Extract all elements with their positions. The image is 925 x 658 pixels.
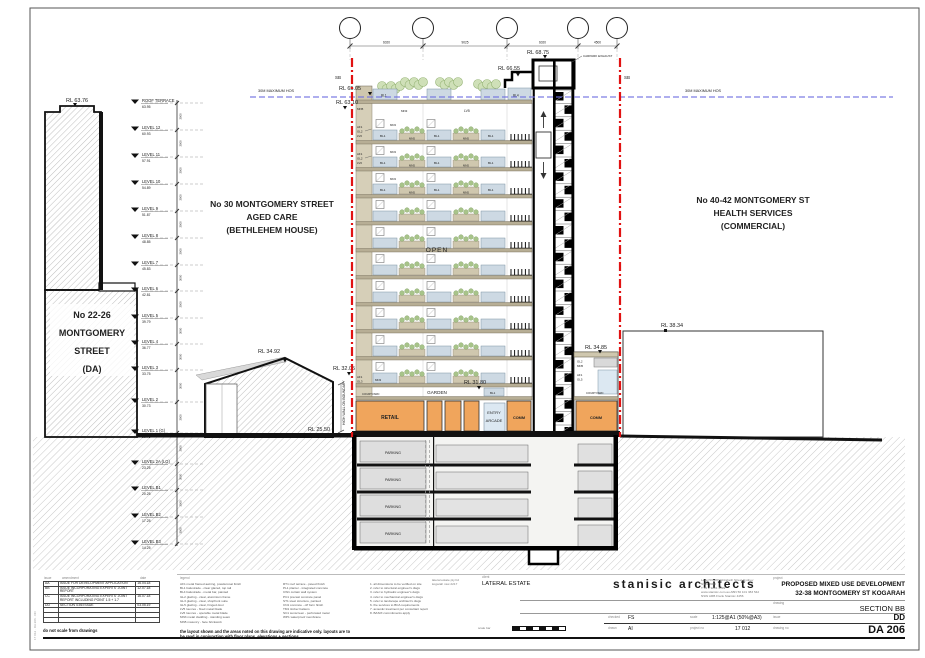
rl-core-roof: RL 66.55 bbox=[498, 66, 520, 72]
planting-icon bbox=[410, 291, 415, 296]
ground-line-left bbox=[137, 433, 356, 438]
planting-icon bbox=[464, 210, 469, 215]
grid-bubble bbox=[497, 18, 518, 39]
balustrade bbox=[481, 211, 505, 221]
planting-icon bbox=[415, 343, 420, 348]
level-dim: 3000 bbox=[179, 140, 183, 147]
svg-text:AGED CARE: AGED CARE bbox=[246, 212, 297, 222]
planting-icon bbox=[415, 370, 420, 375]
planting-icon bbox=[464, 129, 469, 134]
planter bbox=[399, 322, 425, 329]
balustrade bbox=[427, 211, 451, 221]
planting-icon bbox=[405, 235, 410, 240]
tower: BL1 BL4 MN5 MN3 LV5 RL 65.05 RL 63.10 BL… bbox=[336, 78, 532, 432]
planting-icon bbox=[474, 210, 479, 215]
planting-icon bbox=[459, 127, 464, 132]
high-wall-note: HIGH WALL ON BOUNDARY bbox=[342, 380, 346, 425]
planting-icon bbox=[410, 156, 415, 161]
planting-icon bbox=[400, 129, 405, 134]
svg-text:AF1: AF1 bbox=[577, 373, 583, 377]
planting-icon bbox=[415, 262, 420, 267]
rl-left-building: RL 63.76 bbox=[66, 98, 88, 104]
planting-icon bbox=[410, 210, 415, 215]
planting-icon bbox=[415, 316, 420, 321]
grid-dim: 4500 bbox=[594, 41, 601, 45]
level-dim: 3000 bbox=[179, 274, 183, 281]
issue-value: DD bbox=[805, 613, 905, 622]
sb-left: SB bbox=[335, 75, 341, 80]
planting-icon bbox=[400, 345, 405, 350]
svg-text:COMM: COMM bbox=[590, 416, 602, 420]
rl-wing-parapet: RL 34.85 bbox=[585, 345, 607, 351]
level-rl: 45.83 bbox=[142, 267, 151, 271]
planting-icon bbox=[420, 183, 425, 188]
rl-ground-left: RL 25.50 bbox=[308, 427, 330, 433]
planting-icon bbox=[469, 154, 474, 159]
planting-icon bbox=[474, 237, 479, 242]
planting-icon bbox=[464, 345, 469, 350]
stair-flight bbox=[565, 213, 573, 222]
planting-icon bbox=[415, 154, 420, 159]
svg-text:AF1: AF1 bbox=[357, 125, 363, 129]
open-label: OPEN bbox=[426, 247, 448, 254]
level-rl: 54.89 bbox=[142, 186, 151, 190]
checked-value: FS bbox=[628, 615, 634, 621]
svg-text:BL1: BL1 bbox=[380, 161, 386, 165]
svg-text:ENTRY: ENTRY bbox=[487, 410, 501, 415]
planting-icon bbox=[454, 183, 459, 188]
level-dim: 3000 bbox=[179, 382, 183, 389]
planting-icon bbox=[469, 181, 474, 186]
svg-text:GL5: GL5 bbox=[577, 378, 583, 382]
planting-icon bbox=[405, 289, 410, 294]
planting-icon bbox=[454, 345, 459, 350]
drawing-no-value: DA 206 bbox=[805, 624, 905, 636]
svg-text:LV6: LV6 bbox=[357, 134, 362, 138]
svg-text:COURTYARD: COURTYARD bbox=[362, 392, 379, 396]
planting-icon bbox=[405, 370, 410, 375]
planting-icon bbox=[415, 235, 420, 240]
svg-text:MN5: MN5 bbox=[409, 164, 415, 168]
stair-flight bbox=[565, 266, 573, 275]
planting-icon bbox=[415, 289, 420, 294]
site-label-left: No 22-26 bbox=[73, 310, 111, 320]
level-rl: 33.75 bbox=[142, 372, 151, 376]
level-dim: 3000 bbox=[179, 473, 183, 480]
planting-icon bbox=[469, 370, 474, 375]
planting-icon bbox=[474, 129, 479, 134]
ground-slab bbox=[352, 431, 620, 437]
balustrade bbox=[427, 265, 451, 275]
svg-text:No 40-42 MONTGOMERY ST: No 40-42 MONTGOMERY ST bbox=[696, 195, 810, 205]
house: RL 34.92 RL 32.05 RL 25.50 HIGH WALL ON … bbox=[196, 349, 355, 437]
floor-slab bbox=[356, 141, 532, 145]
level-marker-icon bbox=[131, 262, 139, 267]
balustrade bbox=[373, 319, 397, 329]
plot-stamp: 17 012 · DA 206 · DD bbox=[33, 611, 37, 640]
svg-text:MN3: MN3 bbox=[390, 123, 396, 127]
planting-icon bbox=[464, 237, 469, 242]
level-name: LEVEL B2 bbox=[142, 512, 161, 517]
level-marker-icon bbox=[131, 181, 139, 186]
planting-icon bbox=[400, 372, 405, 377]
planting-icon bbox=[400, 291, 405, 296]
level-rl: 42.81 bbox=[142, 293, 151, 297]
planting-icon bbox=[420, 345, 425, 350]
svg-text:30M MAXIMUM HOS: 30M MAXIMUM HOS bbox=[685, 89, 722, 93]
rev-header-date: date bbox=[140, 576, 146, 580]
level-name: LEVEL B1 bbox=[142, 485, 161, 490]
planting-icon bbox=[405, 343, 410, 348]
stair-flight bbox=[565, 373, 573, 382]
planting-icon bbox=[420, 237, 425, 242]
planting-icon bbox=[469, 316, 474, 321]
planting-icon bbox=[464, 183, 469, 188]
level-dim: 3000 bbox=[179, 248, 183, 255]
planting-icon bbox=[464, 291, 469, 296]
planter bbox=[399, 349, 425, 356]
planter bbox=[399, 241, 425, 248]
planting-icon bbox=[454, 372, 459, 377]
retail-label: RETAIL bbox=[381, 415, 399, 421]
planting-icon bbox=[410, 264, 415, 269]
svg-text:BL1: BL1 bbox=[380, 188, 386, 192]
planting-icon bbox=[459, 316, 464, 321]
svg-text:MN3: MN3 bbox=[390, 150, 396, 154]
planting-icon bbox=[464, 372, 469, 377]
svg-text:COMM: COMM bbox=[513, 416, 525, 420]
level-dim: 3000 bbox=[179, 445, 183, 452]
right-building: RL 38.34 bbox=[623, 323, 823, 437]
rl-garden: RL 31.80 bbox=[464, 380, 486, 386]
svg-text:(BETHLEHEM HOUSE): (BETHLEHEM HOUSE) bbox=[226, 225, 317, 235]
planter bbox=[453, 214, 479, 221]
stair-flight bbox=[565, 105, 573, 114]
planting-icon bbox=[474, 183, 479, 188]
level-rl: 51.87 bbox=[142, 213, 151, 217]
rev-header-issue: issue bbox=[44, 576, 51, 580]
level-name: ROOF TERRACE bbox=[142, 98, 175, 103]
planting-icon bbox=[400, 237, 405, 242]
balustrade bbox=[427, 319, 451, 329]
floor-slab bbox=[356, 276, 532, 280]
level-rl: 48.85 bbox=[142, 240, 151, 244]
planting-icon bbox=[454, 129, 459, 134]
level-dim: 3000 bbox=[179, 327, 183, 334]
planter bbox=[399, 376, 425, 383]
planting-icon bbox=[420, 372, 425, 377]
planting-icon bbox=[420, 264, 425, 269]
svg-text:LV5: LV5 bbox=[464, 109, 470, 113]
planting-icon bbox=[464, 156, 469, 161]
level-rl: 36.77 bbox=[142, 346, 151, 350]
planting-icon bbox=[400, 183, 405, 188]
planting-icon bbox=[410, 237, 415, 242]
left-building: No 22-26 MONTGOMERY STREET (DA) RL 63.76 bbox=[45, 98, 137, 437]
planting-icon bbox=[459, 181, 464, 186]
level-dim: 3000 bbox=[179, 414, 183, 421]
grid-bubble bbox=[340, 18, 361, 39]
client-label: client bbox=[482, 575, 489, 579]
level-name: LEVEL 8 bbox=[142, 233, 159, 238]
revision-row: CCISSUE INCORPORATING EXPERTS' JOINT REP… bbox=[44, 595, 160, 603]
svg-text:GL2: GL2 bbox=[357, 157, 363, 161]
planting-icon bbox=[405, 208, 410, 213]
drawing-sheet: No 22-26 MONTGOMERY STREET (DA) RL 63.76… bbox=[0, 0, 925, 658]
level-name: LEVEL 3 bbox=[142, 365, 159, 370]
planting-icon bbox=[474, 318, 479, 323]
svg-text:(COMMERCIAL): (COMMERCIAL) bbox=[721, 221, 785, 231]
level-rl: 30.73 bbox=[142, 404, 151, 408]
svg-text:BL1: BL1 bbox=[488, 161, 494, 165]
planting-icon bbox=[474, 264, 479, 269]
planting-icon bbox=[459, 235, 464, 240]
floor-slab bbox=[356, 195, 532, 199]
level-dim: 3000 bbox=[179, 194, 183, 201]
level-dim: 3000 bbox=[179, 301, 183, 308]
svg-text:AF1: AF1 bbox=[357, 152, 363, 156]
planter bbox=[453, 295, 479, 302]
planting-icon bbox=[410, 318, 415, 323]
rl-house-ridge: RL 34.92 bbox=[258, 349, 280, 355]
legend-col3: 1. all dimensions to be verified on site… bbox=[370, 582, 458, 615]
balustrade bbox=[373, 238, 397, 248]
level-marker-icon bbox=[131, 127, 139, 132]
svg-text:30M MAXIMUM HOS: 30M MAXIMUM HOS bbox=[258, 89, 295, 93]
level-dim: 3000 bbox=[179, 353, 183, 360]
balustrade bbox=[427, 292, 451, 302]
scale-bar bbox=[512, 626, 566, 631]
sb-right: SB bbox=[624, 75, 630, 80]
stair-flight bbox=[565, 347, 573, 356]
level-marker-icon bbox=[131, 208, 139, 213]
tree-icon bbox=[419, 78, 428, 87]
planting-icon bbox=[410, 129, 415, 134]
svg-text:MN5: MN5 bbox=[463, 191, 469, 195]
level-rl: 63.95 bbox=[142, 105, 151, 109]
level-dim: 3000 bbox=[179, 167, 183, 174]
svg-text:MN5: MN5 bbox=[409, 191, 415, 195]
planting-icon bbox=[469, 343, 474, 348]
planter bbox=[453, 322, 479, 329]
parking-label: PARKING bbox=[385, 451, 401, 455]
legend-col1: AF1 metal framed awning, powdercoat fini… bbox=[180, 582, 268, 624]
planting-icon bbox=[420, 291, 425, 296]
planter bbox=[399, 214, 425, 221]
planting-icon bbox=[405, 316, 410, 321]
planter bbox=[453, 268, 479, 275]
planter bbox=[399, 268, 425, 275]
project-no-value: 17 012 bbox=[735, 626, 750, 632]
svg-text:MONTGOMERY: MONTGOMERY bbox=[59, 328, 125, 338]
client-name: LATERAL ESTATE bbox=[482, 581, 530, 587]
planting-icon bbox=[474, 291, 479, 296]
level-name: LEVEL 7 bbox=[142, 260, 159, 265]
planting-icon bbox=[410, 345, 415, 350]
planting-icon bbox=[464, 264, 469, 269]
planting-icon bbox=[410, 183, 415, 188]
svg-text:BL1: BL1 bbox=[380, 134, 386, 138]
floor-slab bbox=[356, 222, 532, 226]
svg-text:GL3: GL3 bbox=[357, 380, 363, 384]
balustrade bbox=[427, 373, 451, 383]
planting-icon bbox=[420, 318, 425, 323]
rev-header-amendment: amendment bbox=[62, 576, 79, 580]
no-scale-note: do not scale from drawings bbox=[43, 628, 97, 633]
svg-text:BL1: BL1 bbox=[434, 161, 440, 165]
svg-text:GL2: GL2 bbox=[357, 130, 363, 134]
level-name: LEVEL 5 bbox=[142, 313, 159, 318]
planting-icon bbox=[400, 318, 405, 323]
grid-dim: 9025 bbox=[461, 41, 468, 45]
balustrade bbox=[373, 346, 397, 356]
planting-icon bbox=[469, 208, 474, 213]
planting-icon bbox=[459, 370, 464, 375]
grid-dim: 6020 bbox=[539, 41, 546, 45]
rl-tower-parapet: RL 65.05 bbox=[339, 86, 361, 92]
svg-text:(DA): (DA) bbox=[83, 364, 102, 374]
svg-text:COURTYARD: COURTYARD bbox=[586, 391, 603, 395]
planting-icon bbox=[410, 372, 415, 377]
svg-text:MN5: MN5 bbox=[463, 164, 469, 168]
planting-icon bbox=[459, 154, 464, 159]
svg-text:HEALTH SERVICES: HEALTH SERVICES bbox=[713, 208, 792, 218]
section-drawing-canvas: No 22-26 MONTGOMERY STREET (DA) RL 63.76… bbox=[0, 0, 925, 658]
basement: PARKINGPARKINGPARKINGPARKING bbox=[352, 435, 618, 551]
grid-bubble bbox=[413, 18, 434, 39]
level-name: LEVEL 2 bbox=[142, 397, 159, 402]
level-marker-icon bbox=[131, 235, 139, 240]
legend-col2: RT1 roof terrace - paved finishPL1 plant… bbox=[283, 582, 371, 620]
planting-icon bbox=[420, 129, 425, 134]
planting-icon bbox=[454, 156, 459, 161]
level-name: LEVEL 10 bbox=[142, 179, 161, 184]
svg-text:BL1: BL1 bbox=[434, 188, 440, 192]
svg-text:MN5: MN5 bbox=[409, 137, 415, 141]
level-dim: 3000 bbox=[179, 527, 183, 534]
planting-icon bbox=[405, 154, 410, 159]
floor-slab bbox=[356, 330, 532, 334]
svg-text:MN5: MN5 bbox=[463, 137, 469, 141]
planting-icon bbox=[454, 210, 459, 215]
planting-icon bbox=[469, 127, 474, 132]
floor-slab bbox=[356, 357, 532, 361]
planting-icon bbox=[400, 264, 405, 269]
level-marker-icon bbox=[131, 100, 139, 105]
drawn-value: AI bbox=[628, 626, 633, 632]
floor-slab bbox=[356, 384, 532, 388]
grid-bubble bbox=[568, 18, 589, 39]
planting-icon bbox=[464, 318, 469, 323]
exhaust-note: CARPARK EXHAUST bbox=[583, 54, 612, 58]
planting-icon bbox=[420, 156, 425, 161]
svg-text:LV6: LV6 bbox=[357, 161, 362, 165]
level-name: LEVEL 9 bbox=[142, 206, 159, 211]
svg-text:GL2: GL2 bbox=[577, 360, 583, 364]
level-rl: 17.25 bbox=[142, 519, 151, 523]
svg-text:BL1: BL1 bbox=[488, 188, 494, 192]
svg-text:MN3: MN3 bbox=[390, 177, 396, 181]
planting-icon bbox=[454, 264, 459, 269]
level-dim: 3000 bbox=[179, 113, 183, 120]
balustrade bbox=[373, 211, 397, 221]
svg-text:MN3: MN3 bbox=[375, 378, 381, 382]
level-rl: 23.25 bbox=[142, 466, 151, 470]
level-name: LEVEL 2A (LG) bbox=[142, 459, 170, 464]
planting-icon bbox=[459, 343, 464, 348]
client-note: lateral estate pty ltdkogarah nsw 2217 bbox=[432, 578, 478, 586]
drawing-title: SECTION BB bbox=[705, 604, 905, 613]
planting-icon bbox=[474, 372, 479, 377]
svg-text:GARDEN: GARDEN bbox=[427, 390, 447, 395]
planting-icon bbox=[454, 291, 459, 296]
parking-label: PARKING bbox=[385, 505, 401, 509]
svg-text:No 30 MONTGOMERY STREET: No 30 MONTGOMERY STREET bbox=[210, 199, 335, 209]
balustrade bbox=[481, 346, 505, 356]
balustrade bbox=[373, 265, 397, 275]
grid-bubble bbox=[607, 18, 628, 39]
tree-icon bbox=[454, 78, 463, 87]
floor-slab bbox=[356, 303, 532, 307]
balustrade bbox=[481, 319, 505, 329]
planter bbox=[453, 349, 479, 356]
floor-slab bbox=[356, 168, 532, 172]
planting-icon bbox=[459, 262, 464, 267]
planter bbox=[399, 295, 425, 302]
planting-icon bbox=[415, 208, 420, 213]
scale-value: 1:125@A1 (50%@A3) bbox=[712, 615, 762, 621]
planting-icon bbox=[454, 318, 459, 323]
stair-flight bbox=[565, 400, 573, 409]
project-title-1: PROPOSED MIXED USE DEVELOPMENT bbox=[655, 581, 905, 588]
stair-flight bbox=[565, 186, 573, 195]
level-rl: 20.25 bbox=[142, 492, 151, 496]
site-labels: No 30 MONTGOMERY STREET AGED CARE (BETHL… bbox=[210, 195, 810, 235]
level-name: LEVEL 4 bbox=[142, 339, 159, 344]
level-name: LEVEL 6 bbox=[142, 286, 159, 291]
balustrade bbox=[481, 292, 505, 302]
svg-text:MN5: MN5 bbox=[577, 364, 583, 368]
planting-icon bbox=[415, 181, 420, 186]
planting-icon bbox=[415, 127, 420, 132]
level-dim: 3000 bbox=[179, 500, 183, 507]
stair-flight bbox=[565, 132, 573, 141]
level-name: LEVEL B3 bbox=[142, 539, 161, 544]
planting-icon bbox=[405, 262, 410, 267]
ground-floor: RETAIL ENTRY ARCADE COMM bbox=[356, 401, 531, 431]
rl-right-building: RL 38.34 bbox=[661, 323, 683, 329]
balustrade bbox=[373, 292, 397, 302]
svg-text:MN3: MN3 bbox=[401, 109, 408, 113]
planting-icon bbox=[469, 235, 474, 240]
parking-label: PARKING bbox=[385, 532, 401, 536]
revision-table: AAISSUE FOR DEVELOPMENT APPLICATION16.04… bbox=[43, 581, 160, 623]
planting-icon bbox=[474, 345, 479, 350]
level-name: LEVEL 12 bbox=[142, 125, 161, 130]
planting-icon bbox=[420, 210, 425, 215]
level-dim: 3000 bbox=[179, 221, 183, 228]
project-title-2: 32-38 MONTGOMERY ST KOGARAH bbox=[655, 590, 905, 597]
level-name: LEVEL 1 (G) bbox=[142, 428, 166, 433]
legend-label: legend bbox=[180, 576, 190, 580]
balustrade bbox=[481, 265, 505, 275]
level-rl: 60.93 bbox=[142, 132, 151, 136]
planting-icon bbox=[400, 156, 405, 161]
stair-flight bbox=[565, 293, 573, 302]
svg-text:STREET: STREET bbox=[74, 346, 110, 356]
level-marker-icon bbox=[131, 154, 139, 159]
level-name: LEVEL 11 bbox=[142, 152, 161, 157]
